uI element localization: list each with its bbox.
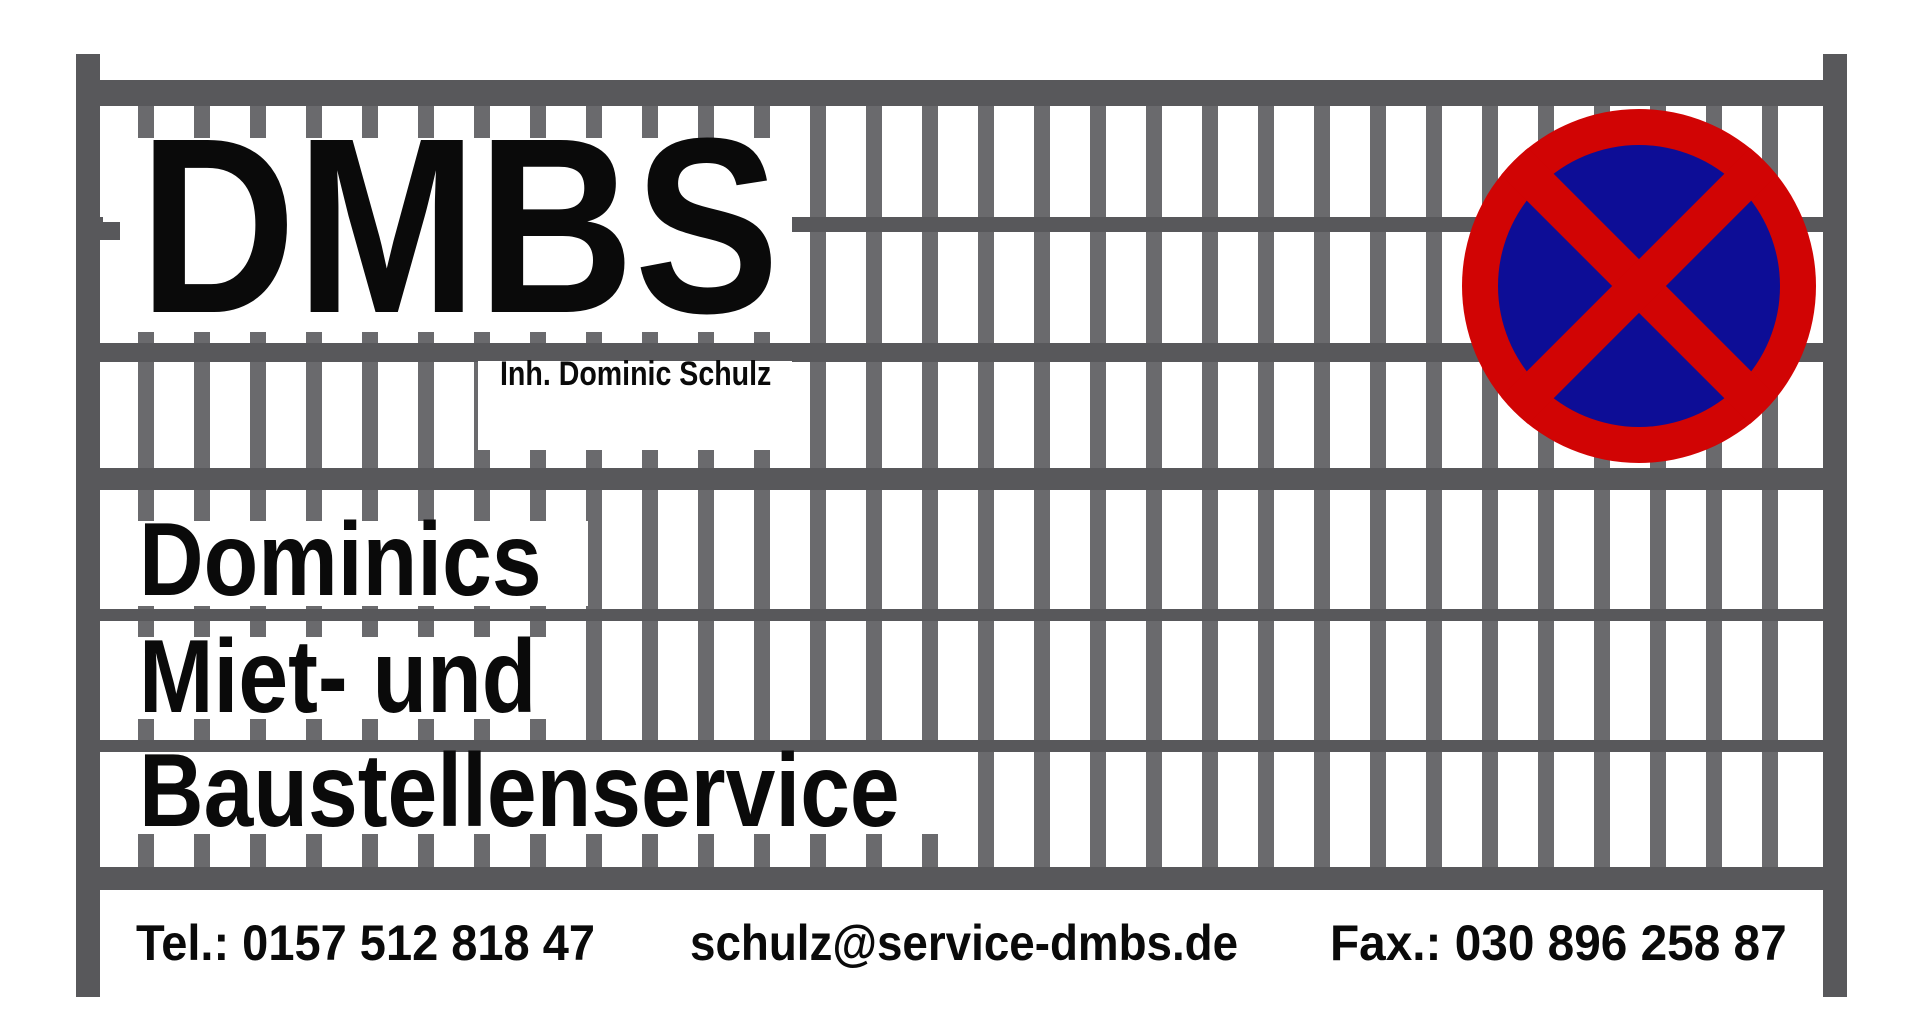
- owner-line: Inh. Dominic Schulz: [500, 357, 771, 391]
- fence-rail: [76, 867, 1847, 890]
- fence-post-right: [1823, 54, 1847, 997]
- fence-post-left: [76, 54, 100, 997]
- tagline-line-1: Dominics: [139, 508, 542, 612]
- phone-number: Tel.: 0157 512 818 47: [136, 918, 595, 968]
- tagline-line-2: Miet- und: [139, 625, 536, 729]
- no-stopping-sign-icon: [1462, 109, 1816, 463]
- dmbs-logo-banner: DMBS Inh. Dominic Schulz Dominics Miet- …: [0, 0, 1920, 1029]
- fence-coupler: [98, 222, 120, 240]
- fax-number: Fax.: 030 896 258 87: [1330, 918, 1787, 968]
- email-address: schulz@service-dmbs.de: [690, 918, 1238, 968]
- brand-title: DMBS: [139, 101, 779, 351]
- fence-rail: [76, 468, 1847, 490]
- tagline-line-3: Baustellenservice: [139, 739, 900, 843]
